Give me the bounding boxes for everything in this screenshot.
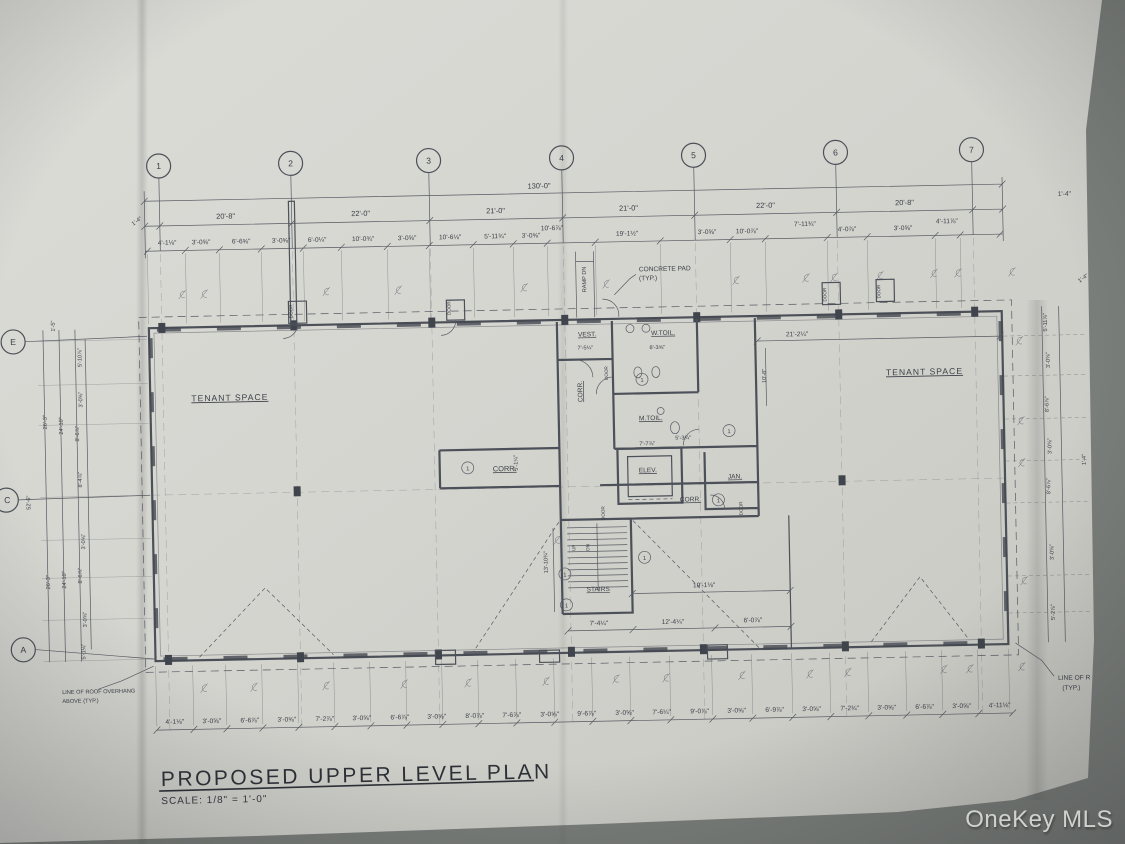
grid-bubble-3: 3 [426,156,431,166]
dim-right: 5'-11⅞" [1043,313,1049,332]
dim-bottom: 4'-11⅛" [989,702,1012,709]
dim-left: 3'-0⅝" [81,534,87,550]
dim-bottom: 7'-2¾" [840,705,859,712]
door-label: DOOR [738,501,743,516]
grid-bubble-4: 4 [559,153,564,163]
door-label: DOOR [604,365,609,380]
dim-bottom: 6'-6⅞" [390,714,409,721]
dim-bottom: 7'-6⅞" [502,712,521,719]
dim-bottom: 3'-0⅝" [202,718,221,725]
dim-bay-4: 21'-0" [619,203,638,212]
dim-top-detail: 3'-0⅝" [894,225,913,232]
dim-bottom: 3'-0⅝" [540,711,559,718]
door-label: DOOR [288,304,293,319]
dim-bottom: 6'-6⅞" [915,704,934,711]
dim-right: 3'-0⅝" [1049,544,1055,560]
dim-stair-height: 13'-10¾" [543,551,549,573]
dim-right: 8'-6⅞" [1044,396,1050,412]
grid-bubble-E: E [10,337,16,347]
dim-bottom: 3'-0⅝" [277,716,296,723]
dim-bottom: 6'-9⅞" [765,707,784,714]
dim-left: 8'-6⅞" [75,426,81,442]
dim-bottom: 3'-0⅝" [352,715,371,722]
concrete-pad-note: CONCRETE PAD [639,265,691,273]
room-label-mtoil: M.TOIL. [639,415,663,422]
room-label-tenant-left: TENANT SPACE [191,392,268,404]
ramp-dn-label: RAMP DN [582,267,589,293]
dim-top-detail: 19'-1½" [616,229,639,237]
dim-bay-6: 20'-8" [895,198,914,207]
dim-bottom: 7'-2⅞" [315,716,334,723]
photo-of-floor-plan: 1 2 3 4 5 6 7 E C A 130'-0" 20'-8" 22' [0,0,1125,844]
keynote: 1 [643,556,646,562]
concrete-pad-note-2: (TYP.) [639,275,657,282]
stair-up-label: UP [571,544,576,550]
dim-top-detail: 3'-0⅝" [398,235,417,242]
keynote: 1 [563,572,566,578]
dim-top-detail: 10'-0¾" [352,236,375,243]
dim-bay-2: 22'-0" [351,209,370,218]
room-label-tenant-right: TENANT SPACE [886,366,963,378]
dim-top-detail: 3'-0⅝" [192,239,211,246]
dim-top-detail: 3'-0⅝" [272,237,291,244]
dim-bottom: 8'-0⅞" [465,713,484,720]
line-of-r-note: LINE OF R [1058,674,1091,682]
dim-top-detail: 10'-0⅞" [736,228,759,235]
dim-left: 3'-0⅝" [83,612,89,628]
keynote: 1 [466,466,469,472]
dim-top-detail: 5'-11¾" [484,233,507,240]
dim-right: 3'-0⅝" [1047,438,1053,454]
stair-dn-label: DN [585,544,590,551]
keynote: 1 [727,429,730,435]
dim-lower-mid: 12'-4¼" [662,619,685,626]
grid-bubble-5: 5 [691,150,696,160]
paper-fold-right [1026,300,1048,800]
floor-plan-drawing: 1 2 3 4 5 6 7 E C A 130'-0" 20'-8" 22' [0,0,1125,844]
dim-top-detail: 3'-0⅝" [522,232,541,239]
dim-top-detail: 10'-6⅛" [439,234,462,241]
grid-bubble-2: 2 [288,158,293,168]
dim-top-detail: 4'-11⅞" [936,218,959,225]
dim-right: 1'-4" [1082,454,1088,465]
dim-elev: 7'-7⅞" [639,441,655,447]
dim-left: 5'-1⅛" [81,644,87,660]
watermark: OneKey MLS [965,806,1113,834]
dim-bottom: 9'-0⅞" [690,708,709,715]
dim-top-detail: 10'-6⅞" [541,225,564,232]
grid-bubble-C: C [4,495,10,505]
door-label: DOOR [876,284,881,299]
grid-bubble-A: A [20,645,26,655]
dim-left: 52'-6" [26,495,32,509]
room-label-vest: VEST. [578,331,597,338]
dim-bottom: 4'-1⅛" [165,719,184,726]
dim-lower-right: 6'-0⅞" [743,617,762,624]
dim-left: 5'-10⅞" [77,348,83,367]
dim-overall: 130'-0" [528,181,551,190]
dim-mtoil: 5'-3¼" [675,435,691,441]
dim-wtoil: 8'-3⅝" [649,345,665,351]
dim-left: 1'-5" [51,320,57,331]
dim-end-right: 1'-4" [1058,191,1072,198]
dim-bottom: 3'-0⅝" [615,710,634,717]
room-label-jan: JAN. [728,473,743,480]
dim-stair-width: 7'-4¼" [590,620,609,627]
dim-bottom: 6'-6⅞" [240,717,259,724]
dim-right-depth: 10'-8" [762,369,768,383]
keynote: 1 [717,498,720,504]
dim-stair-bay: 19'-1⅛" [693,582,716,589]
dim-right: 3'-0⅝" [1046,352,1052,368]
roof-overhang-note-2: ABOVE (TYP.) [62,698,99,705]
dim-bottom: 7'-6¼" [652,709,671,716]
dim-top-detail: 4'-0⅞" [838,226,857,233]
dim-vest: 7'-5¼" [577,345,593,351]
line-of-r-note-2: (TYP.) [1062,685,1080,692]
dim-bay-5: 22'-0" [756,201,775,210]
dim-bottom: 3'-0⅝" [877,704,896,711]
room-label-corr-upper: CORR. [577,381,584,403]
grid-bubble-6: 6 [833,147,838,157]
dim-left: 8'-4⅞" [78,472,84,488]
dim-top-detail: 6'-6⅝" [232,238,251,245]
dim-left: 3'-0⅝" [78,392,84,408]
room-label-corr-lower: CORR. [680,496,702,503]
keynote: 1 [565,603,568,609]
room-label-stairs: STAIRS [586,586,610,593]
dim-top-detail: 4'-1⅛" [158,240,177,247]
dim-right: 5'-2⅞" [1051,604,1057,620]
door-label: DOOR [822,287,827,302]
door-label: DOOR [446,301,451,316]
dim-top-detail: 3'-0⅝" [698,229,717,236]
paper-crease-left [136,0,148,844]
grid-bubble-1: 1 [156,161,161,171]
room-label-elev: ELEV. [639,467,657,474]
dim-bottom: 3'-0⅝" [952,703,971,710]
dim-left: 24'-10" [62,571,68,588]
dim-right-clear: 21'-2¼" [786,331,809,338]
dim-bottom: 3'-0⅝" [802,706,821,713]
grid-bubble-7: 7 [969,145,974,155]
dim-bottom: 9'-6⅞" [577,710,596,717]
dim-left: 24'-10" [59,417,65,434]
dim-bottom: 3'-0⅝" [427,713,446,720]
dim-left: 26'-3" [46,575,52,589]
dim-bay-1: 20'-8" [216,211,235,220]
room-label-wtoil: W.TOIL. [651,330,675,337]
door-label: DOOR [601,506,606,521]
dim-right: 8'-6⅞" [1046,478,1052,494]
dim-top-detail: 6'-0¼" [308,237,327,244]
dim-top-detail: 7'-11¾" [794,221,817,228]
dim-left: 8'-6⅞" [78,568,84,584]
dim-bay-3: 21'-0" [486,206,505,215]
dim-corr-width: 5'-1¼" [513,455,519,471]
keynote: 1 [640,378,643,384]
dim-bottom: 3'-0⅝" [727,707,746,714]
drawing-scale: SCALE: 1/8" = 1'-0" [161,794,267,807]
dim-left: 26'-3" [43,415,49,429]
